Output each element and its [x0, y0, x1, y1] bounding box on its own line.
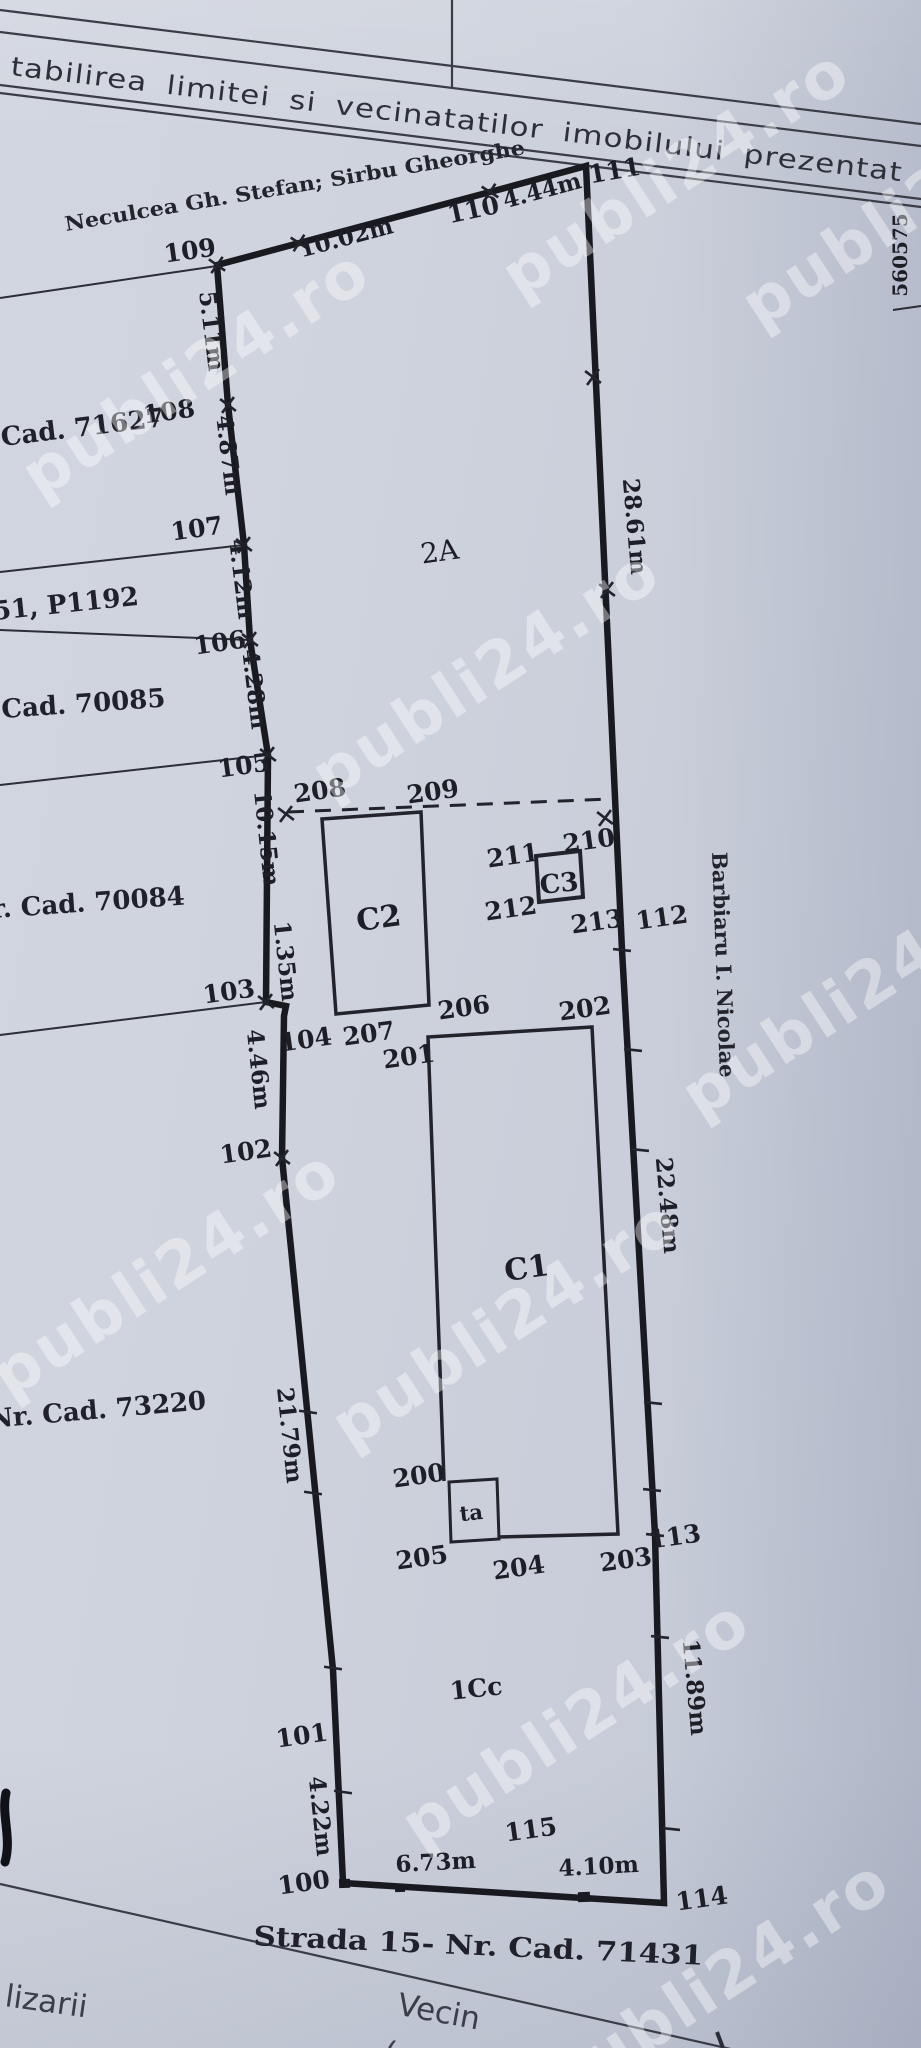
plan-drawing: tabilirea limitei si vecinatatilor imobi…	[0, 0, 921, 2048]
street-label: Strada 15- Nr. Cad. 71431	[253, 1921, 704, 1972]
point-100: 100	[276, 1865, 332, 1901]
point-115: 115	[503, 1812, 559, 1848]
measure-4-10: 4.10m	[558, 1851, 640, 1882]
point-212: 212	[483, 891, 539, 927]
watermarks: publi24.ro publi24.ro publi24.ro publi24…	[0, 34, 921, 2048]
measure-1-35: 1.35m	[268, 920, 303, 1003]
point-110: 110	[445, 190, 502, 229]
point-114: 114	[674, 1881, 730, 1917]
watermark-text: publi24.ro	[8, 234, 384, 514]
building-c3-label: C3	[538, 867, 580, 901]
measure-21-79: 21.79m	[271, 1386, 308, 1485]
point-112: 112	[634, 900, 690, 936]
point-210: 210	[561, 823, 617, 859]
measure-4-12: 4.12m	[223, 538, 260, 621]
point-104: 104	[278, 1022, 334, 1058]
point-205: 205	[394, 1540, 450, 1576]
building-c2-label: C2	[354, 898, 403, 939]
zone-2a-label: 2A	[419, 532, 462, 570]
point-206: 206	[436, 990, 492, 1026]
ink-mark	[5, 1793, 8, 1862]
annex-ta-label: ta	[458, 1499, 484, 1526]
footer-vecin-label: Vecin	[395, 1987, 483, 2038]
point-107: 107	[169, 511, 225, 547]
measure-4-87: 4.87m	[210, 414, 247, 497]
point-203: 203	[598, 1542, 654, 1578]
parcel-p1192-label: 51, P1192	[0, 582, 140, 627]
point-200: 200	[391, 1458, 447, 1494]
measure-4-22: 4.22m	[303, 1775, 338, 1858]
measure-10-15: 10.15m	[248, 789, 285, 888]
point-213: 213	[569, 904, 625, 940]
point-105: 105	[216, 748, 272, 784]
watermark-text: publi24.ro	[298, 534, 674, 814]
watermark-text: publi24.ro	[318, 1184, 694, 1464]
measure-4-28: 4.28m	[236, 648, 273, 731]
point-211: 211	[485, 838, 541, 874]
point-113: 113	[647, 1519, 703, 1555]
footer-left-fragment: lizarii	[3, 1978, 90, 2025]
zone-1cc-label: 1Cc	[448, 1671, 503, 1705]
cadastral-plan-photo: tabilirea limitei si vecinatatilor imobi…	[0, 0, 921, 2048]
point-109: 109	[162, 233, 218, 269]
grid-tick	[893, 306, 921, 310]
measure-4-46: 4.46m	[241, 1028, 276, 1111]
parcel-70085-label: Cad. 70085	[0, 684, 166, 725]
measurement-labels: 10.02m 4.44m 5.11m 4.87m 4.12m 4.28m 10.…	[193, 167, 712, 1882]
watermark-text: publi24.ro	[668, 854, 921, 1134]
point-202: 202	[557, 991, 613, 1027]
point-204: 204	[491, 1550, 547, 1586]
parcel-70084-label: r. Cad. 70084	[0, 882, 186, 925]
footer-nume-fragment: (nume	[380, 2035, 486, 2048]
point-101: 101	[274, 1718, 330, 1754]
